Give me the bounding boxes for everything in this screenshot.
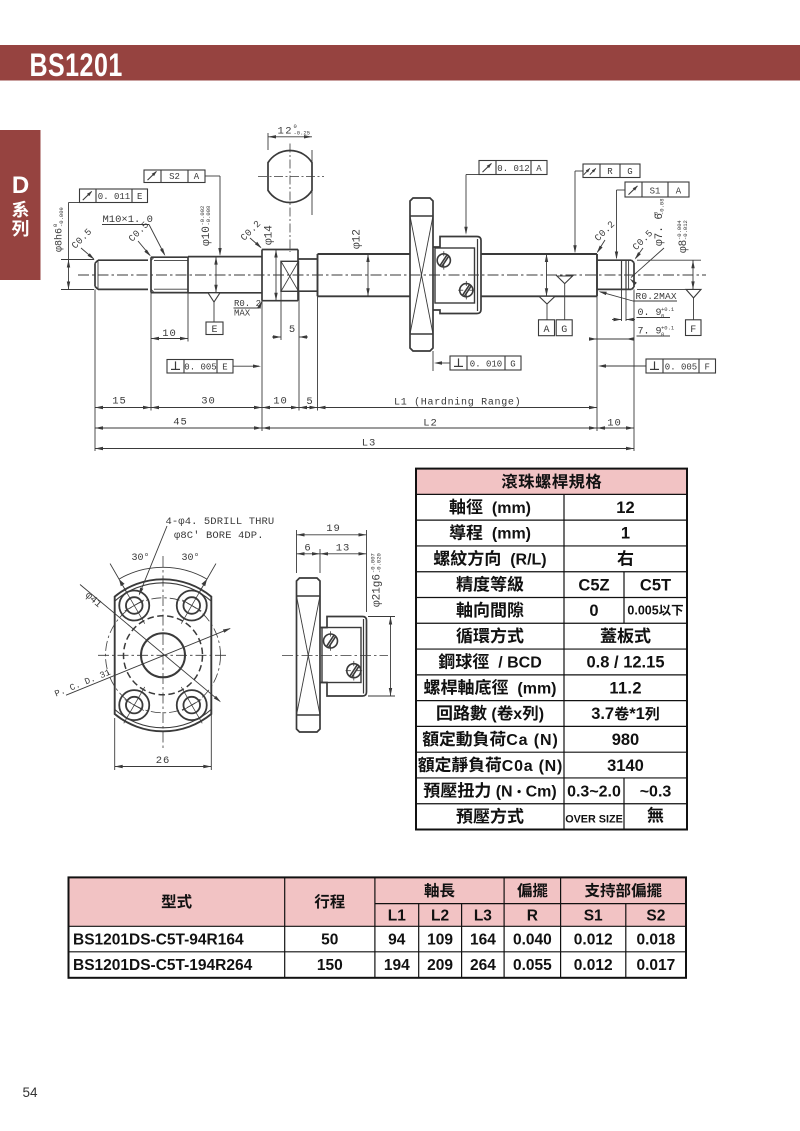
svg-text:0: 0 <box>661 313 664 320</box>
svg-text:φ14: φ14 <box>264 225 276 245</box>
svg-text:5: 5 <box>289 324 295 336</box>
svg-text:C5Z: C5Z <box>578 576 609 594</box>
svg-text:BS1201DS-C5T-194R264: BS1201DS-C5T-194R264 <box>73 957 253 974</box>
svg-text:R: R <box>527 907 538 924</box>
svg-text:A: A <box>543 325 549 336</box>
svg-text:109: 109 <box>427 931 453 948</box>
svg-text:5: 5 <box>306 396 312 408</box>
svg-text:194: 194 <box>384 957 410 974</box>
svg-text:(N: (N <box>496 784 513 801</box>
svg-text:264: 264 <box>470 957 496 974</box>
svg-text:0.005: 0.005 <box>627 604 658 618</box>
svg-text:0.040: 0.040 <box>513 931 552 948</box>
svg-text:-0.008: -0.008 <box>205 206 212 226</box>
svg-text:980: 980 <box>612 731 640 749</box>
svg-text:OVER SIZE: OVER SIZE <box>565 813 623 825</box>
svg-text:G: G <box>561 325 567 336</box>
svg-text:(mm): (mm) <box>517 680 556 697</box>
svg-text:Ca (N): Ca (N) <box>506 732 558 749</box>
svg-text:45: 45 <box>173 417 188 429</box>
svg-text:R0. 2: R0. 2 <box>234 299 261 309</box>
svg-text:19: 19 <box>326 523 341 535</box>
svg-text:0. 005: 0. 005 <box>184 362 216 372</box>
svg-text:C5T: C5T <box>640 576 671 594</box>
svg-text:10: 10 <box>273 396 288 408</box>
svg-text:0.3~2.0: 0.3~2.0 <box>567 784 621 801</box>
svg-text:10: 10 <box>607 418 622 430</box>
svg-text:L3: L3 <box>362 438 377 450</box>
svg-text:φ10: φ10 <box>201 226 213 246</box>
svg-text:S1: S1 <box>650 186 661 196</box>
svg-text:R0.2MAX: R0.2MAX <box>636 291 677 302</box>
svg-text:-0.08: -0.08 <box>659 198 666 215</box>
svg-text:54: 54 <box>23 1085 39 1100</box>
svg-text:150: 150 <box>317 957 343 974</box>
svg-text:4-φ4. 5DRILL THRU: 4-φ4. 5DRILL THRU <box>166 516 275 528</box>
svg-text:E: E <box>211 325 217 336</box>
svg-text:φ8h6: φ8h6 <box>54 228 66 252</box>
svg-text:S2: S2 <box>646 907 665 924</box>
svg-text:): ) <box>539 706 544 723</box>
svg-text:φ8: φ8 <box>678 240 690 253</box>
svg-text:φ12: φ12 <box>352 229 364 249</box>
svg-text:BS1201: BS1201 <box>30 48 123 84</box>
svg-text:G: G <box>510 359 515 369</box>
svg-text:6: 6 <box>304 543 310 555</box>
svg-text:11.2: 11.2 <box>609 679 641 697</box>
svg-text:164: 164 <box>470 931 496 948</box>
svg-text:30: 30 <box>201 396 216 408</box>
svg-text:-0.009: -0.009 <box>58 207 65 227</box>
svg-text:L2: L2 <box>431 907 449 924</box>
svg-text:12: 12 <box>616 499 634 517</box>
svg-text:3.7: 3.7 <box>591 705 614 723</box>
svg-text:0.017: 0.017 <box>637 957 676 974</box>
svg-text:0. 011: 0. 011 <box>98 192 130 202</box>
svg-text:F: F <box>690 325 696 336</box>
svg-text:MAX: MAX <box>234 309 251 319</box>
svg-text:0.8 / 12.15: 0.8 / 12.15 <box>587 654 665 672</box>
svg-text:(R/L): (R/L) <box>510 552 546 569</box>
svg-text:0. 005: 0. 005 <box>665 362 697 372</box>
svg-text:0: 0 <box>661 331 664 338</box>
svg-text:-0.012: -0.012 <box>682 220 689 240</box>
svg-text:E: E <box>137 192 142 202</box>
svg-text:13: 13 <box>336 543 351 555</box>
svg-text:S1: S1 <box>584 907 603 924</box>
svg-text:BS1201DS-C5T-94R164: BS1201DS-C5T-94R164 <box>73 931 244 948</box>
svg-text:D: D <box>12 172 29 199</box>
svg-text:0.018: 0.018 <box>637 931 676 948</box>
svg-text:209: 209 <box>427 957 453 974</box>
svg-text:-0.020: -0.020 <box>376 553 383 573</box>
svg-text:~0.3: ~0.3 <box>640 784 672 801</box>
svg-text:0.055: 0.055 <box>513 957 552 974</box>
svg-text:x: x <box>513 706 522 723</box>
svg-text:0: 0 <box>589 602 598 620</box>
svg-text:50: 50 <box>321 931 338 948</box>
svg-text:1: 1 <box>621 525 630 543</box>
svg-text:A: A <box>676 186 682 196</box>
svg-text:0.012: 0.012 <box>574 931 613 948</box>
svg-text:φ8C' BORE 4DP.: φ8C' BORE 4DP. <box>174 530 264 542</box>
svg-text:30°: 30° <box>131 552 149 564</box>
svg-text:φ7. 6: φ7. 6 <box>654 213 666 246</box>
svg-text:A: A <box>536 164 542 174</box>
svg-text:26: 26 <box>156 755 171 767</box>
svg-text:3140: 3140 <box>607 757 644 775</box>
svg-text:(: ( <box>491 706 497 723</box>
svg-text:φ21g6: φ21g6 <box>372 574 384 607</box>
svg-text:/ BCD: / BCD <box>498 655 542 672</box>
svg-text:S2: S2 <box>169 172 180 182</box>
svg-text:L2: L2 <box>423 418 438 430</box>
svg-text:0.012: 0.012 <box>574 957 613 974</box>
svg-text:L1 (Hardning Range): L1 (Hardning Range) <box>394 397 521 409</box>
svg-text:L3: L3 <box>474 907 492 924</box>
svg-text:*1: *1 <box>629 705 645 723</box>
svg-text:0. 012: 0. 012 <box>497 164 529 174</box>
svg-text:94: 94 <box>388 931 406 948</box>
svg-text:15: 15 <box>112 396 127 408</box>
svg-text:R: R <box>607 167 613 177</box>
svg-text:(mm): (mm) <box>492 526 531 543</box>
svg-text:12: 12 <box>278 126 294 138</box>
svg-text:L1: L1 <box>388 907 406 924</box>
svg-text:C0a (N): C0a (N) <box>502 758 563 775</box>
svg-text:10: 10 <box>162 328 177 340</box>
svg-text:F: F <box>705 362 710 372</box>
svg-text:E: E <box>222 362 227 372</box>
svg-text:A: A <box>194 172 200 182</box>
svg-text:Cm): Cm) <box>526 784 557 801</box>
svg-text:30°: 30° <box>181 552 199 564</box>
svg-text:-0.25: -0.25 <box>294 130 311 137</box>
svg-text:(mm): (mm) <box>492 500 531 517</box>
svg-text:0. 010: 0. 010 <box>470 359 502 369</box>
svg-text:G: G <box>627 167 632 177</box>
